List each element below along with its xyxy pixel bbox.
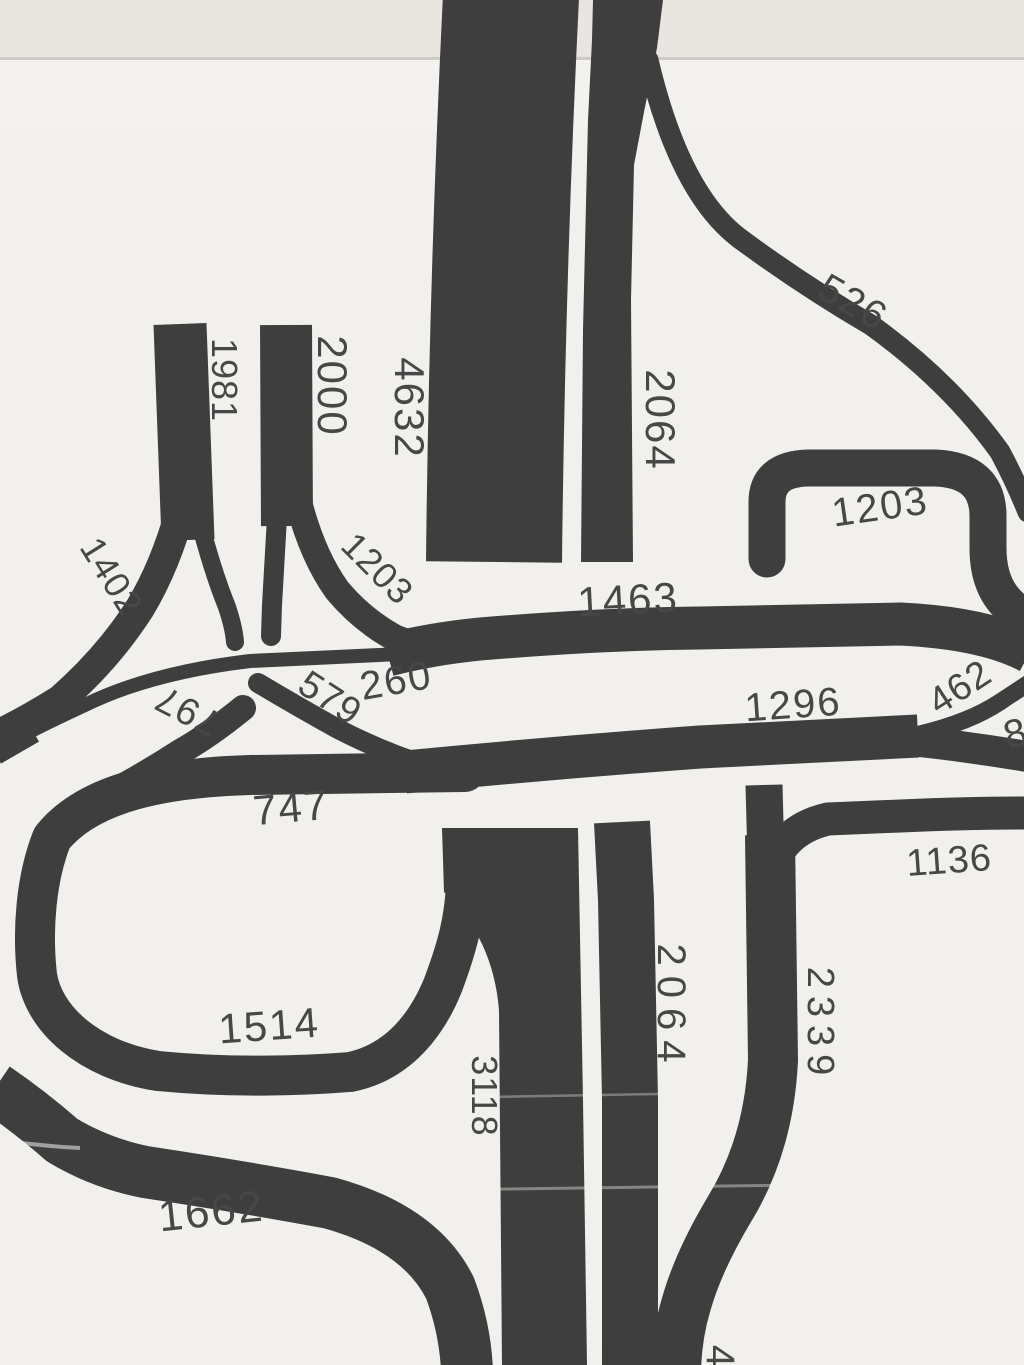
- svg-text:1514: 1514: [217, 999, 321, 1053]
- svg-text:747: 747: [251, 781, 331, 834]
- svg-text:2000: 2000: [309, 335, 356, 436]
- svg-text:3118: 3118: [464, 1055, 505, 1136]
- svg-text:1136: 1136: [905, 837, 993, 885]
- svg-text:1463: 1463: [576, 573, 680, 625]
- svg-text:1981: 1981: [204, 338, 245, 422]
- svg-text:4632: 4632: [386, 357, 433, 458]
- svg-text:2339: 2339: [799, 967, 841, 1084]
- svg-text:4: 4: [698, 1345, 742, 1365]
- svg-text:2064: 2064: [637, 369, 684, 470]
- svg-text:2064: 2064: [649, 944, 693, 1073]
- svg-text:1296: 1296: [743, 680, 843, 731]
